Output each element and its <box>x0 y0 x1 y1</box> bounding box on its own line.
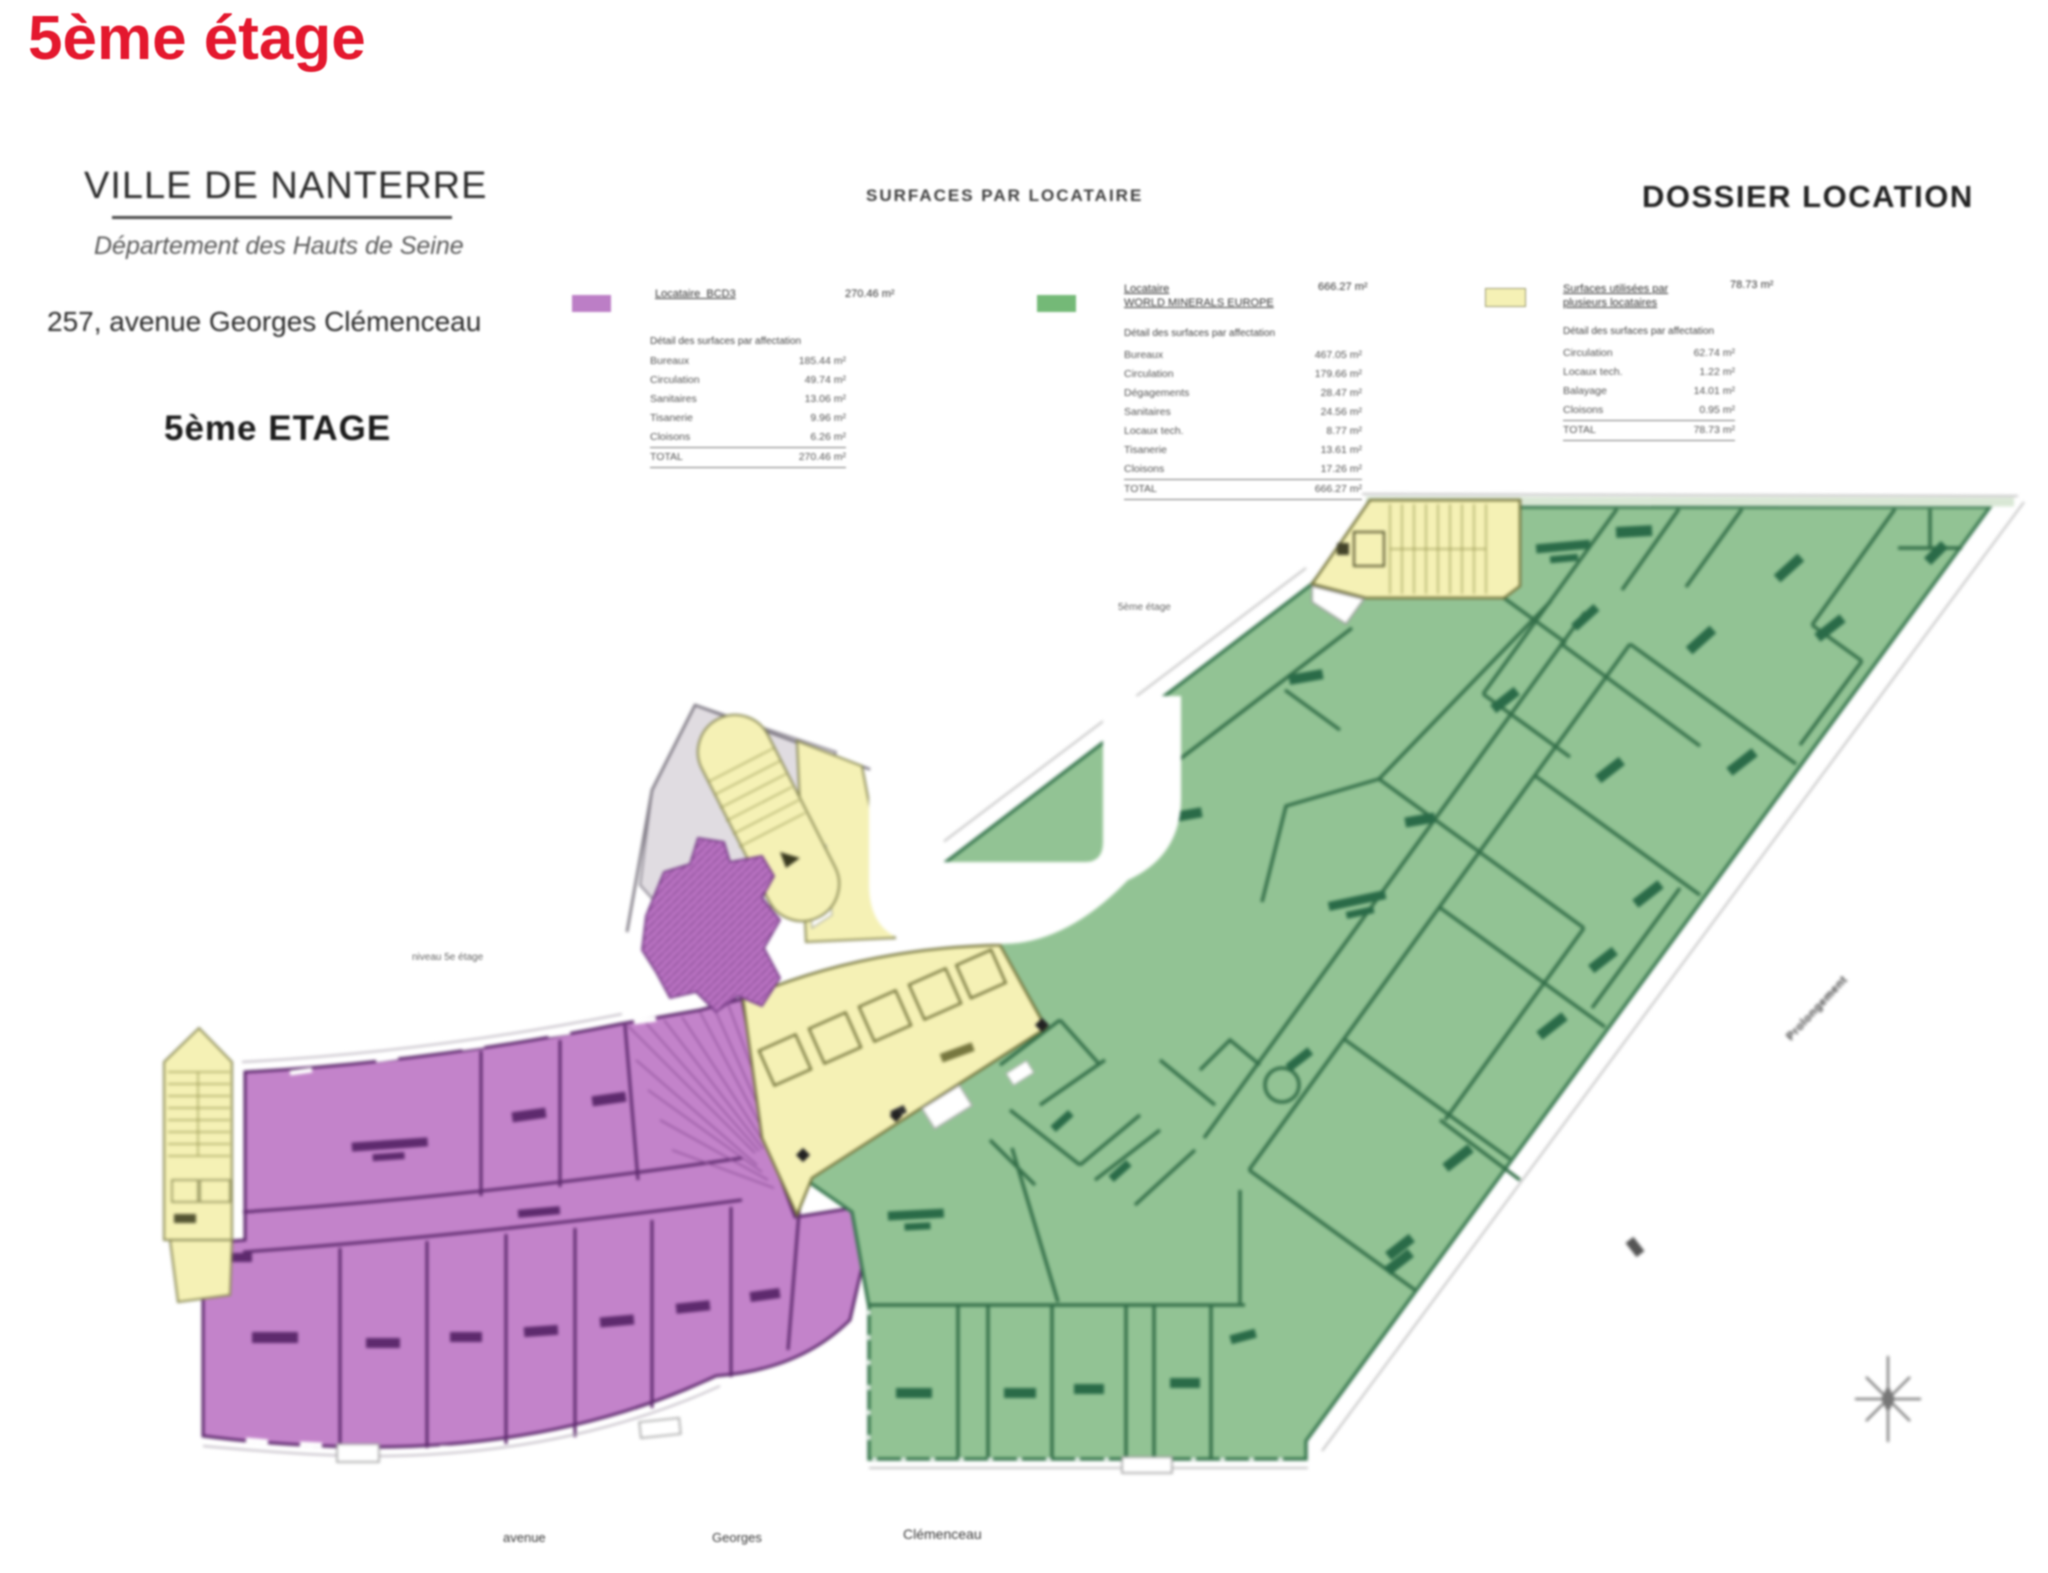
svg-text:Prolongement: Prolongement <box>1784 974 1850 1043</box>
